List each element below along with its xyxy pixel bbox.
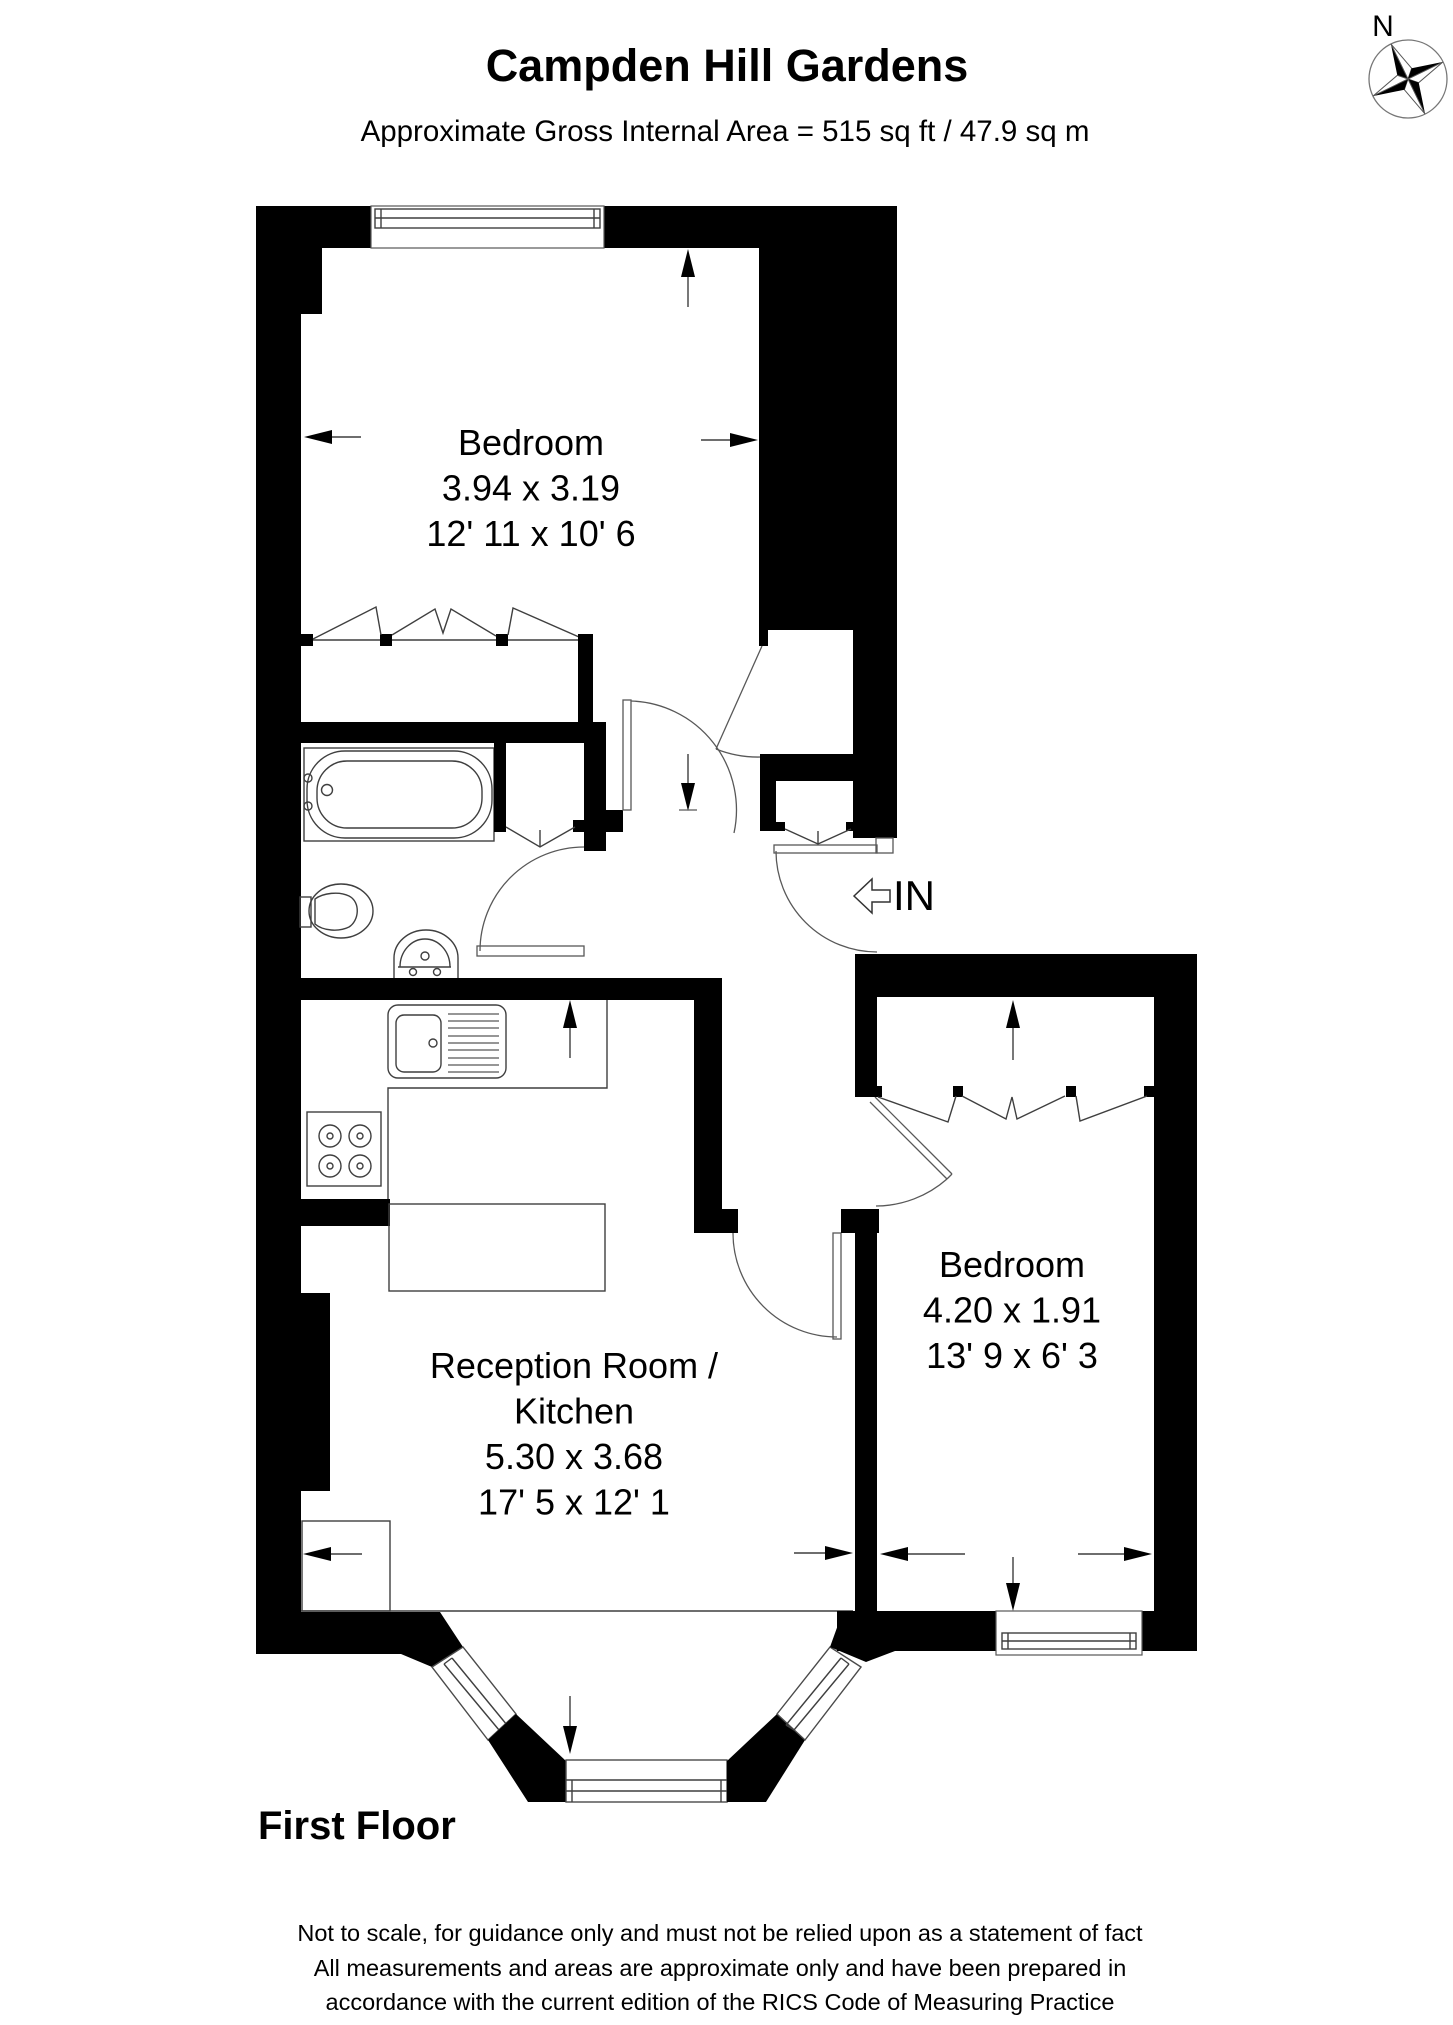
svg-text:N: N — [1372, 10, 1394, 43]
svg-text:12' 11 x 10' 6: 12' 11 x 10' 6 — [426, 513, 635, 554]
svg-text:5.30 x 3.68: 5.30 x 3.68 — [485, 1436, 663, 1477]
svg-text:All measurements and areas are: All measurements and areas are approxima… — [314, 1955, 1127, 1981]
svg-text:Campden Hill Gardens: Campden Hill Gardens — [486, 40, 969, 91]
svg-text:13' 9 x 6' 3: 13' 9 x 6' 3 — [926, 1335, 1098, 1376]
svg-text:Bedroom: Bedroom — [939, 1244, 1085, 1285]
svg-text:IN: IN — [893, 872, 935, 919]
svg-text:4.20 x 1.91: 4.20 x 1.91 — [923, 1290, 1101, 1331]
svg-text:Not to scale, for guidance onl: Not to scale, for guidance only and must… — [297, 1920, 1143, 1946]
svg-text:First Floor: First Floor — [258, 1804, 456, 1848]
svg-text:Bedroom: Bedroom — [458, 422, 604, 463]
svg-text:Approximate Gross Internal Are: Approximate Gross Internal Area = 515 sq… — [361, 115, 1090, 148]
svg-text:17' 5 x 12' 1: 17' 5 x 12' 1 — [478, 1482, 670, 1523]
svg-text:accordance with the current ed: accordance with the current edition of t… — [326, 1989, 1115, 2015]
svg-text:3.94 x 3.19: 3.94 x 3.19 — [442, 468, 620, 509]
svg-text:Reception Room /: Reception Room / — [430, 1345, 718, 1386]
svg-text:Kitchen: Kitchen — [514, 1391, 634, 1432]
